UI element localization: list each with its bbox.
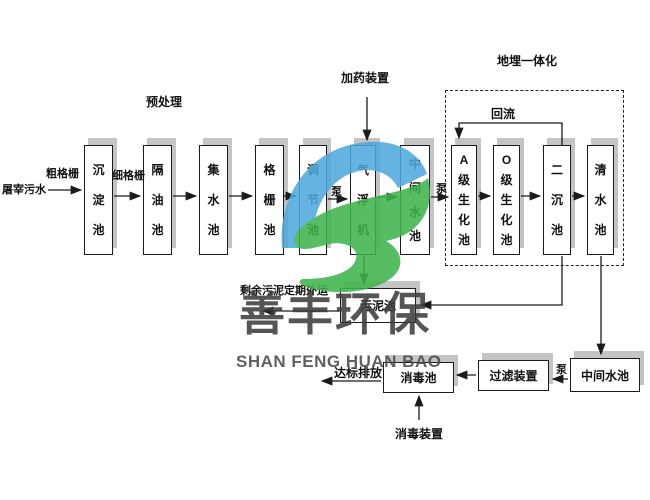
tank-screen: 格栅池 xyxy=(255,145,284,255)
tank-sedimentation: 沉淀池 xyxy=(84,145,113,255)
tank-label: 集水池 xyxy=(200,146,227,254)
tank-label: 污泥池 xyxy=(341,289,415,322)
fine-screen-label: 细格栅 xyxy=(112,167,145,183)
tank-label: 清水池 xyxy=(588,146,613,254)
tank-label: 气浮机 xyxy=(351,146,375,254)
tank-o-stage-bio: O级生化池 xyxy=(493,145,520,255)
tank-disinfection: 消毒池 xyxy=(383,362,454,393)
pretreatment-label: 预处理 xyxy=(146,93,182,110)
inflow-label: 屠宰污水 xyxy=(2,181,46,197)
tank-sludge: 污泥池 xyxy=(340,288,416,323)
tank-intermediate-1: 中间水池 xyxy=(400,145,430,255)
device-filter: 过滤装置 xyxy=(478,360,549,391)
coarse-screen-label: 粗格栅 xyxy=(46,165,79,181)
pump-label-2: 泵 xyxy=(436,180,447,196)
disinfection-device-label: 消毒装置 xyxy=(395,425,443,442)
tank-secondary-sedimentation: 二沉池 xyxy=(543,145,571,255)
tank-a-stage-bio: A级生化池 xyxy=(451,145,477,255)
tank-label: 隔油池 xyxy=(144,146,171,254)
tank-clear-water: 清水池 xyxy=(587,145,614,255)
tank-label: 过滤装置 xyxy=(479,361,548,390)
tank-label: 二沉池 xyxy=(544,146,570,254)
tank-label: 消毒池 xyxy=(384,363,453,392)
discharge-label: 达标排放 xyxy=(334,364,382,381)
process-flow-diagram: 沉淀池 隔油池 集水池 格栅池 调节池 气浮机 中间水池 A级生化池 O级生化池… xyxy=(0,0,650,500)
pump-label-1: 泵 xyxy=(331,183,342,199)
tank-label: 中间水池 xyxy=(571,359,639,391)
reflux-label: 回流 xyxy=(491,105,515,122)
tank-label: O级生化池 xyxy=(494,146,519,254)
tank-air-flotation: 气浮机 xyxy=(350,145,376,255)
tank-label: 调节池 xyxy=(300,146,326,254)
pump-label-3: 泵 xyxy=(556,361,567,377)
tank-regulating: 调节池 xyxy=(299,145,327,255)
dosing-device-label: 加药装置 xyxy=(341,69,389,86)
tank-label: 格栅池 xyxy=(256,146,283,254)
tank-intermediate-2: 中间水池 xyxy=(570,358,640,392)
buried-integration-label: 地埋一体化 xyxy=(497,52,557,69)
tank-label: 中间水池 xyxy=(401,146,429,254)
tank-water-collection: 集水池 xyxy=(199,145,228,255)
sludge-haul-out-label: 剩余污泥定期外运 xyxy=(240,282,328,298)
tank-oil-separation: 隔油池 xyxy=(143,145,172,255)
tank-label: A级生化池 xyxy=(452,146,476,254)
tank-label: 沉淀池 xyxy=(85,146,112,254)
